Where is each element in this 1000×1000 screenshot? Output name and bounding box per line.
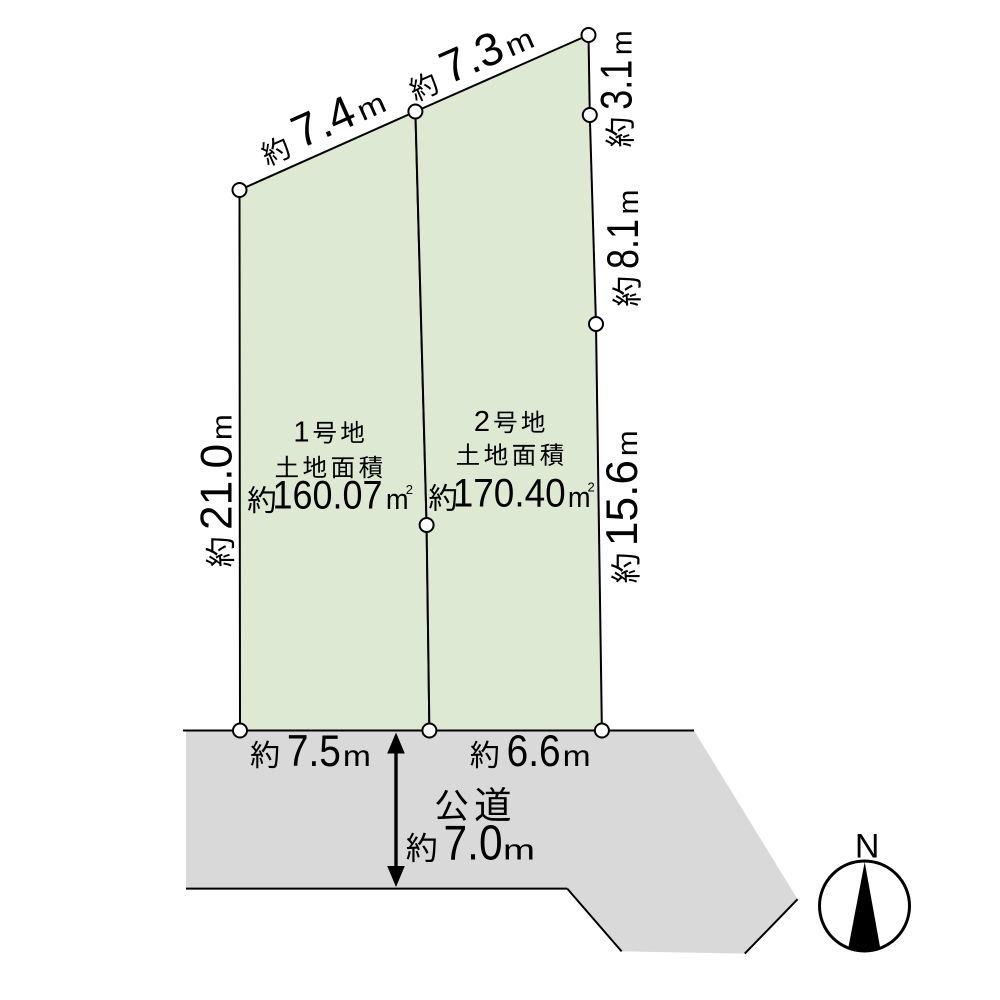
svg-text:m: m xyxy=(503,835,535,867)
svg-text:6.6: 6.6 xyxy=(507,727,561,776)
svg-text:m: m xyxy=(563,740,591,773)
svg-text:7.0: 7.0 xyxy=(444,817,503,871)
svg-text:m: m xyxy=(606,30,638,55)
svg-text:m: m xyxy=(207,414,239,440)
svg-text:8.1: 8.1 xyxy=(599,219,648,269)
svg-text:3.1: 3.1 xyxy=(592,60,641,110)
svg-text:N: N xyxy=(855,827,880,865)
svg-text:7.5: 7.5 xyxy=(287,727,341,776)
svg-text:m: m xyxy=(343,740,371,773)
svg-text:2: 2 xyxy=(474,406,490,438)
svg-text:1: 1 xyxy=(293,416,309,448)
svg-text:170.40: 170.40 xyxy=(453,471,566,515)
svg-text:2: 2 xyxy=(406,482,413,497)
svg-text:m: m xyxy=(613,189,645,214)
svg-text:m: m xyxy=(612,430,644,456)
svg-text:15.6: 15.6 xyxy=(598,460,647,546)
svg-text:160.07: 160.07 xyxy=(273,474,383,518)
svg-text:2: 2 xyxy=(588,479,595,494)
svg-text:21.0: 21.0 xyxy=(193,444,242,530)
